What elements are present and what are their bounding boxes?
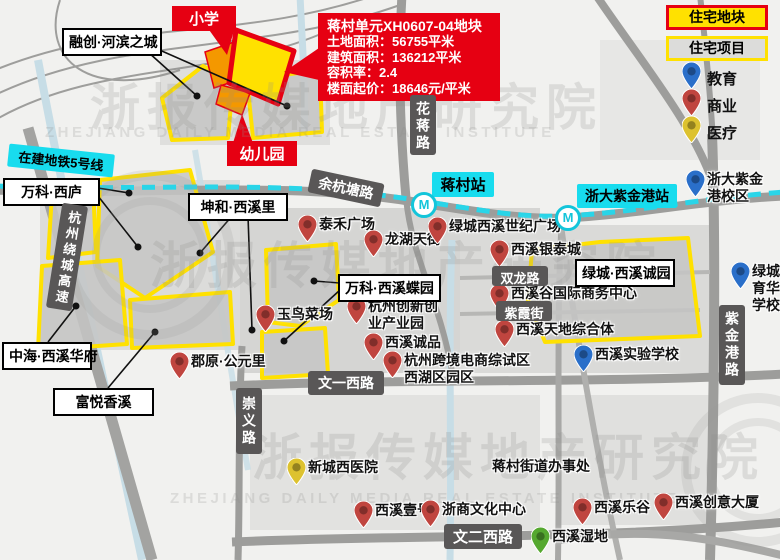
- road-label: 文二西路: [444, 524, 522, 549]
- parcel-floor-price: 楼面起价：18646元/平米: [327, 81, 491, 97]
- poi-pin-commerce: [490, 240, 509, 267]
- poi-label: 浙大紫金港校区: [707, 171, 763, 205]
- road-label: 紫金港路: [719, 305, 745, 385]
- poi-pin-commerce: [654, 493, 673, 520]
- map-pin-icon: [495, 320, 514, 347]
- map-pin-icon: [682, 62, 701, 89]
- project-label-box: 坤和·西溪里: [188, 193, 288, 221]
- poi-pin-medical: [287, 458, 306, 485]
- poi-pin-commerce: [573, 498, 592, 525]
- street-office-label: 蒋村街道办事处: [492, 458, 590, 475]
- parcel-plot-ratio: 容积率：2.4: [327, 65, 491, 81]
- project-label-box: 富悦香溪: [53, 388, 154, 416]
- poi-pin-commerce: [256, 305, 275, 332]
- poi-pin-commerce: [354, 501, 373, 528]
- poi-pin-commerce: [428, 217, 447, 244]
- map-pin-icon: [686, 170, 705, 197]
- road-label: 文一西路: [308, 371, 384, 395]
- parcel-title: 蒋村单元XH0607-04地块: [327, 18, 491, 34]
- poi-label: 绿城西溪世纪广场: [449, 218, 561, 235]
- map-pin-icon: [170, 352, 189, 379]
- map-pin-icon: [682, 116, 701, 143]
- medical-pin-icon: [682, 116, 701, 148]
- parcel-floor-area: 建筑面积：136212平米: [327, 50, 491, 66]
- map-pin-icon: [354, 501, 373, 528]
- poi-pin-commerce: [421, 500, 440, 527]
- road-label: 花蒋路: [410, 95, 436, 155]
- poi-pin-education: [731, 262, 750, 289]
- poi-pin-commerce: [383, 351, 402, 378]
- poi-label: 西溪诚品: [385, 334, 441, 351]
- project-label-box: 万科·西溪蝶园: [338, 274, 441, 302]
- project-label-box: 融创·河滨之城: [62, 28, 162, 56]
- road-label: 崇义路: [236, 388, 262, 454]
- poi-label: 西溪创意大厦: [675, 494, 759, 511]
- poi-label: 西溪银泰城: [511, 241, 581, 258]
- poi-pin-nature: [531, 527, 550, 554]
- poi-label: 西溪天地综合体: [516, 321, 614, 338]
- parcel-info-callout: 蒋村单元XH0607-04地块 土地面积：56755平米 建筑面积：136212…: [318, 13, 500, 101]
- poi-label: 西溪湿地: [552, 528, 608, 545]
- project-label-box: 中海·西溪华府: [2, 342, 92, 370]
- poi-label: 新城西医院: [308, 459, 378, 476]
- map-pin-icon: [573, 498, 592, 525]
- map-pin-icon: [682, 89, 701, 116]
- poi-label: 浙商文化中心: [442, 501, 526, 518]
- metro-station-icon: M: [411, 192, 437, 218]
- site-tag: 小学: [172, 6, 236, 31]
- map-pin-icon: [731, 262, 750, 289]
- map-pin-icon: [428, 217, 447, 244]
- poi-pin-commerce: [170, 352, 189, 379]
- map-pin-icon: [383, 351, 402, 378]
- legend-residential-parcel: 住宅地块: [666, 5, 768, 30]
- poi-pin-commerce: [364, 333, 383, 360]
- map-pin-icon: [364, 333, 383, 360]
- poi-pin-commerce: [364, 230, 383, 257]
- legend-item-label: 教育: [707, 68, 737, 89]
- poi-label: 郡原·公元里: [191, 353, 266, 370]
- project-label-box: 绿城·西溪诚园: [575, 259, 675, 287]
- poi-label: 杭州跨境电商综试区西湖区园区: [404, 352, 530, 386]
- poi-label: 玉鸟菜场: [277, 306, 333, 323]
- metro-station-tag: 蒋村站: [432, 172, 494, 197]
- map-pin-icon: [654, 493, 673, 520]
- poi-label: 西溪乐谷: [594, 499, 650, 516]
- road-label: 紫霞街: [496, 301, 552, 321]
- poi-label: 杭州创新创业产业园: [368, 298, 438, 332]
- map-pin-icon: [531, 527, 550, 554]
- legend-item-label: 医疗: [707, 122, 737, 143]
- map-pin-icon: [574, 345, 593, 372]
- metro-station-icon: M: [555, 205, 581, 231]
- map-canvas[interactable]: 浙报传媒地产研究院 ZHEJIANG DAILY MEDIA REAL ESTA…: [0, 0, 780, 560]
- map-pin-icon: [256, 305, 275, 332]
- map-pin-icon: [298, 215, 317, 242]
- project-label-box: 万科·西庐: [3, 178, 100, 206]
- legend-residential-project: 住宅项目: [666, 36, 768, 61]
- metro-station-tag: 浙大紫金港站: [577, 184, 677, 208]
- poi-label: 绿城育华学校: [752, 263, 780, 314]
- poi-pin-commerce: [495, 320, 514, 347]
- poi-label: 西溪实验学校: [595, 346, 679, 363]
- map-pin-icon: [364, 230, 383, 257]
- parcel-land-area: 土地面积：56755平米: [327, 34, 491, 50]
- map-pin-icon: [421, 500, 440, 527]
- legend-item-medical: 医疗: [682, 116, 737, 148]
- site-tag: 幼儿园: [227, 141, 297, 166]
- legend-item-label: 商业: [707, 95, 737, 116]
- map-pin-icon: [490, 240, 509, 267]
- poi-pin-commerce: [298, 215, 317, 242]
- poi-label: 西溪谷国际商务中心: [511, 285, 637, 302]
- road-label: 双龙路: [492, 266, 548, 286]
- map-pin-icon: [287, 458, 306, 485]
- poi-pin-education: [574, 345, 593, 372]
- poi-pin-education: [686, 170, 705, 197]
